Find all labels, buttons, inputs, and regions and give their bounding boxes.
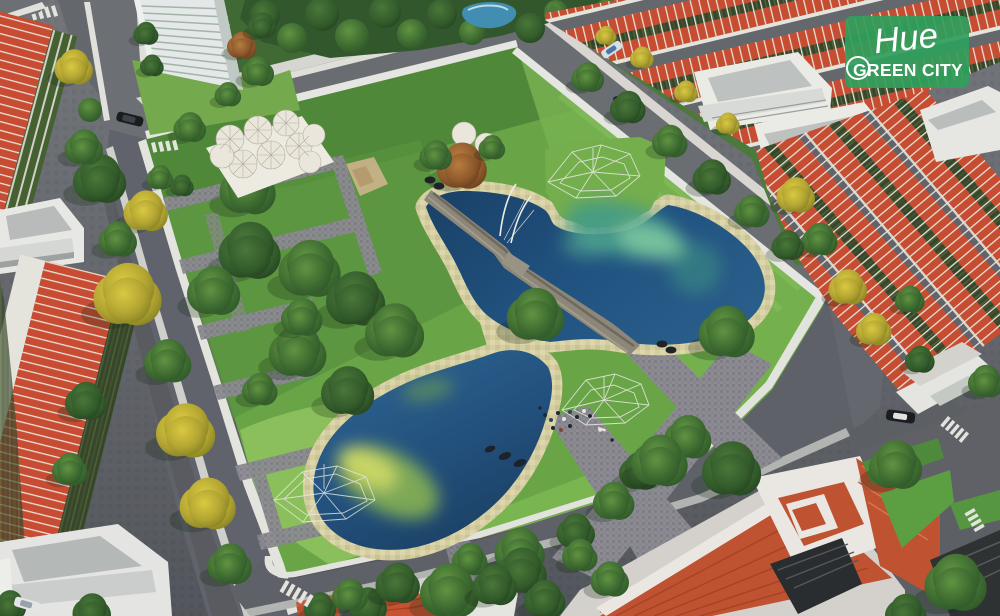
svg-text:GREEN CITY: GREEN CITY — [853, 60, 963, 80]
svg-text:Hue: Hue — [872, 16, 940, 61]
